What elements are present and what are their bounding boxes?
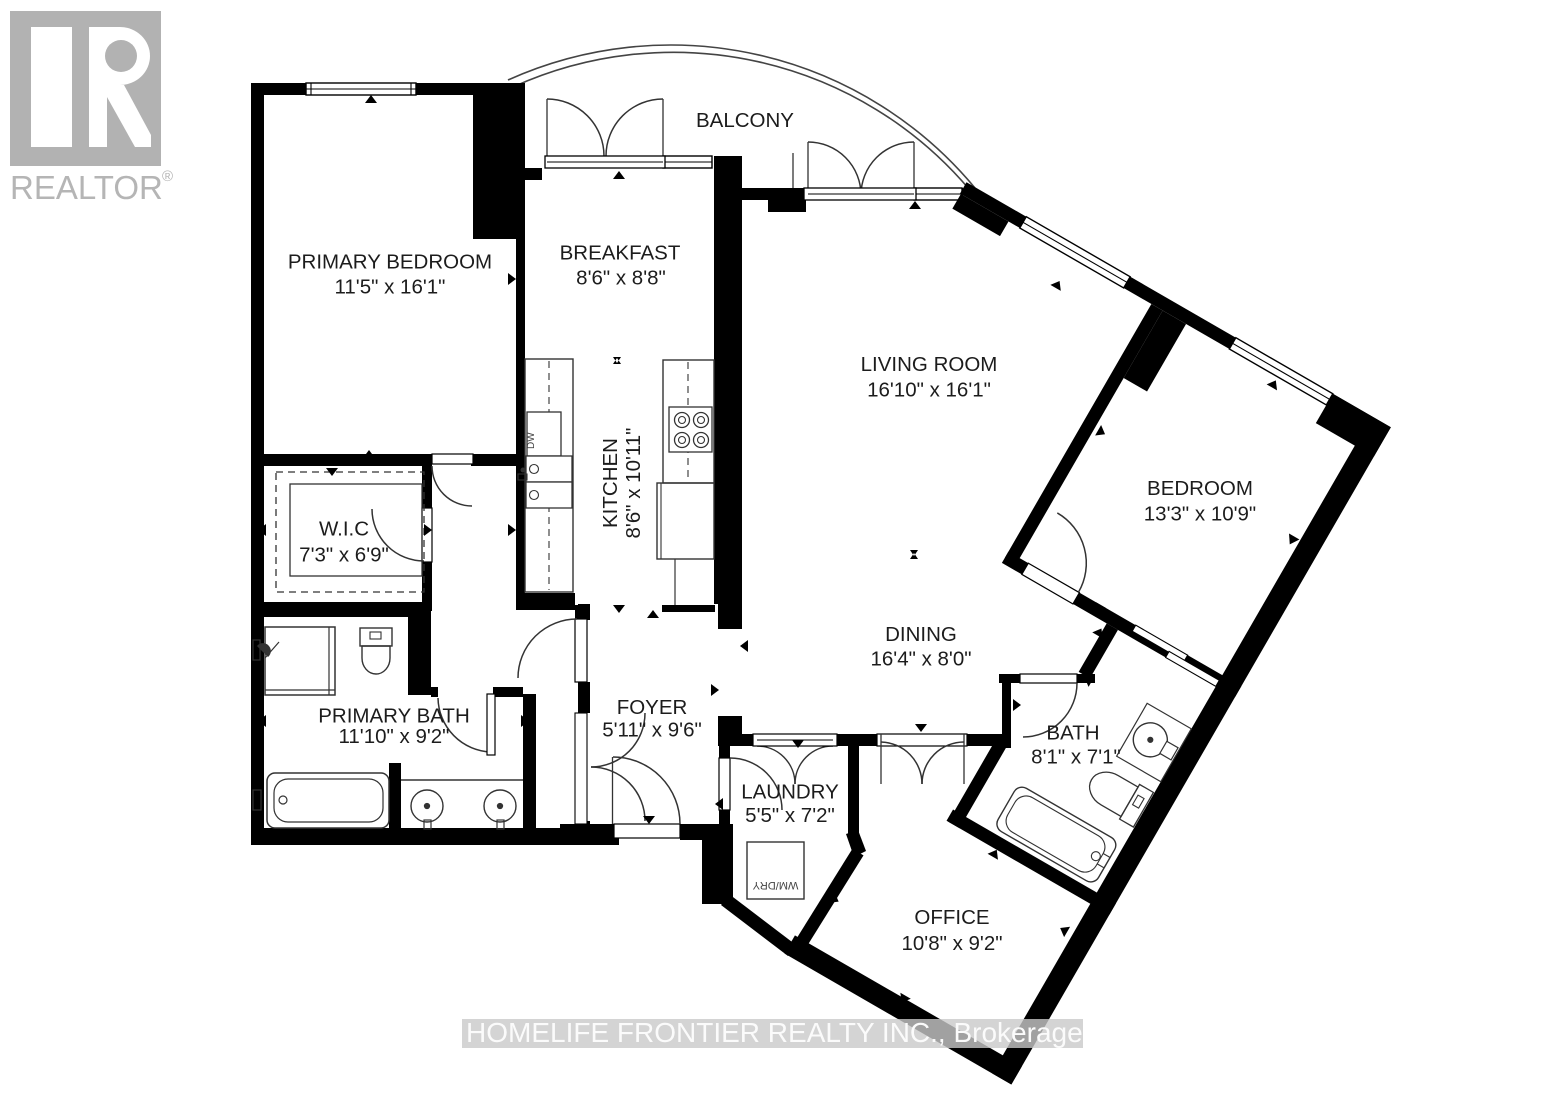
svg-text:BATH: BATH	[1046, 722, 1099, 745]
svg-text:8'1" x 7'1": 8'1" x 7'1"	[1031, 746, 1121, 769]
svg-text:BREAKFAST: BREAKFAST	[560, 242, 681, 265]
svg-text:BALCONY: BALCONY	[696, 109, 794, 132]
svg-text:8'6" x 10'11": 8'6" x 10'11"	[622, 428, 645, 539]
svg-text:11'5" x 16'1": 11'5" x 16'1"	[335, 276, 446, 299]
svg-text:5'5" x 7'2": 5'5" x 7'2"	[745, 804, 835, 827]
svg-text:PRIMARY BEDROOM: PRIMARY BEDROOM	[288, 251, 492, 274]
svg-text:W.I.C: W.I.C	[319, 518, 369, 541]
svg-text:OFFICE: OFFICE	[914, 906, 989, 929]
svg-text:REALTOR: REALTOR	[10, 169, 163, 206]
svg-text:®: ®	[162, 168, 173, 185]
svg-text:16'4" x 8'0": 16'4" x 8'0"	[870, 648, 971, 671]
svg-text:LIVING ROOM: LIVING ROOM	[861, 353, 998, 376]
svg-text:HOMELIFE FRONTIER REALTY INC.,: HOMELIFE FRONTIER REALTY INC., Brokerage	[466, 1017, 1083, 1048]
svg-text:FOYER: FOYER	[617, 696, 688, 719]
svg-text:10'8" x 9'2": 10'8" x 9'2"	[901, 932, 1002, 955]
svg-text:WM/DRY: WM/DRY	[752, 879, 798, 891]
svg-text:16'10" x 16'1": 16'10" x 16'1"	[867, 379, 991, 402]
svg-text:DINING: DINING	[885, 623, 957, 646]
svg-text:BEDROOM: BEDROOM	[1147, 477, 1253, 500]
svg-text:8'6" x 8'8": 8'6" x 8'8"	[576, 266, 666, 289]
svg-text:5'11" x 9'6": 5'11" x 9'6"	[602, 719, 702, 742]
svg-text:11'10" x 9'2": 11'10" x 9'2"	[339, 725, 450, 748]
svg-text:KITCHEN: KITCHEN	[599, 438, 622, 528]
svg-text:DW: DW	[526, 432, 537, 449]
svg-text:13'3" x 10'9": 13'3" x 10'9"	[1144, 503, 1256, 526]
svg-text:LAUNDRY: LAUNDRY	[741, 781, 839, 804]
svg-text:7'3" x 6'9": 7'3" x 6'9"	[299, 544, 389, 567]
